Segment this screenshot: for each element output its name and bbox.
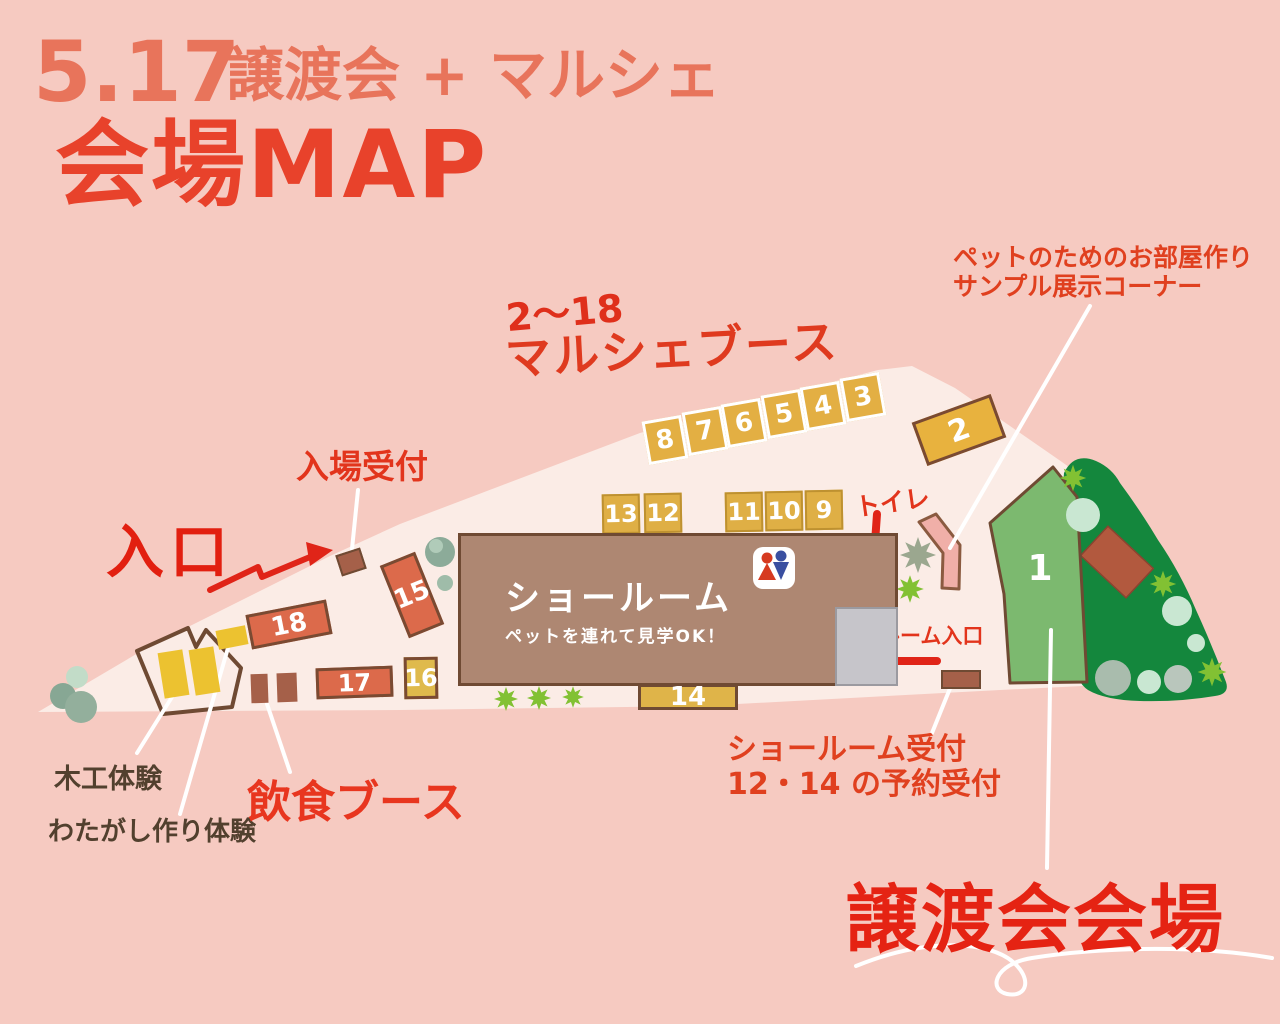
marche-booth-17: 17 [315,666,393,700]
cotton-candy-label: わたがし作り体験 [48,818,256,848]
booth-number: 7 [693,415,716,448]
woodworking-label: 木工体験 [54,764,162,795]
showroom-building: ショールーム ペットを連れて見学OK！ [458,533,898,686]
food-booth-1 [250,674,268,704]
booth-number: 2 [943,410,975,450]
booth-number: 14 [670,682,706,712]
food-booths-label: 飲食ブース [247,778,465,829]
marche-booth-4: 4 [799,381,846,431]
marche-booth-10: 10 [765,491,804,532]
booth-number: 6 [732,407,755,440]
showroom-reception-label: ショールーム受付 12・14 の予約受付 [727,733,1001,802]
marche-booth-9: 9 [805,490,844,531]
showroom-reception-booth [941,670,981,689]
food-booth-2 [277,673,298,703]
marche-booth-11: 11 [725,492,764,533]
pet-room-sample-line1: ペットのためのお部屋作り [953,244,1253,273]
booth-number: 18 [268,606,309,642]
marche-booth-6: 6 [720,398,767,448]
left-tip-trees [50,666,97,723]
adoption-area-number: 1 [1020,548,1060,589]
marche-booth-14: 14 [638,684,738,710]
showroom-reception-line1: ショールーム受付 [727,733,1001,768]
booth-number: 8 [653,424,676,457]
booth-number: 3 [851,381,874,414]
pet-room-sample-label: ペットのためのお部屋作り サンプル展示コーナー [953,244,1253,302]
entrance-label: 入口 [106,519,234,586]
booth-number: 12 [646,499,680,528]
pet-room-sample-line2: サンプル展示コーナー [953,273,1253,302]
booth-number: 16 [404,664,438,693]
adoption-venue-label: 譲渡会会場 [845,878,1225,963]
booth-number: 11 [727,498,761,527]
showroom-reception-line2: 12・14 の予約受付 [727,768,1001,803]
poster-date: 5.17 [33,24,240,121]
marche-booth-8: 8 [641,415,688,465]
marche-booth-13: 13 [602,494,641,535]
map-heading: 会場MAP [55,112,488,220]
restroom-icon [753,547,795,589]
booth-number: 9 [815,496,832,524]
marche-booth-3: 3 [839,372,886,422]
restroom-figures [753,547,795,589]
gray-flower [900,537,936,573]
showroom-title: ショールーム [505,579,732,619]
marche-booth-12: 12 [644,493,683,534]
booth-number: 5 [772,398,795,431]
venue-map-poster: 5.17 譲渡会 + マルシェ 会場MAP 2〜18 マルシェブース ペットのた… [0,0,1280,1024]
showroom-note: ペットを連れて見学OK！ [505,628,726,648]
booth-number: 17 [337,668,371,697]
booth-number: 13 [604,500,638,529]
booth-number: 10 [767,497,801,526]
entrance-reception-label: 入場受付 [296,448,428,486]
marche-booth-16: 16 [404,657,439,700]
showroom-entrance-area [835,607,898,686]
poster-event-title: 譲渡会 + マルシェ [226,42,721,109]
booth-number: 4 [811,390,834,423]
